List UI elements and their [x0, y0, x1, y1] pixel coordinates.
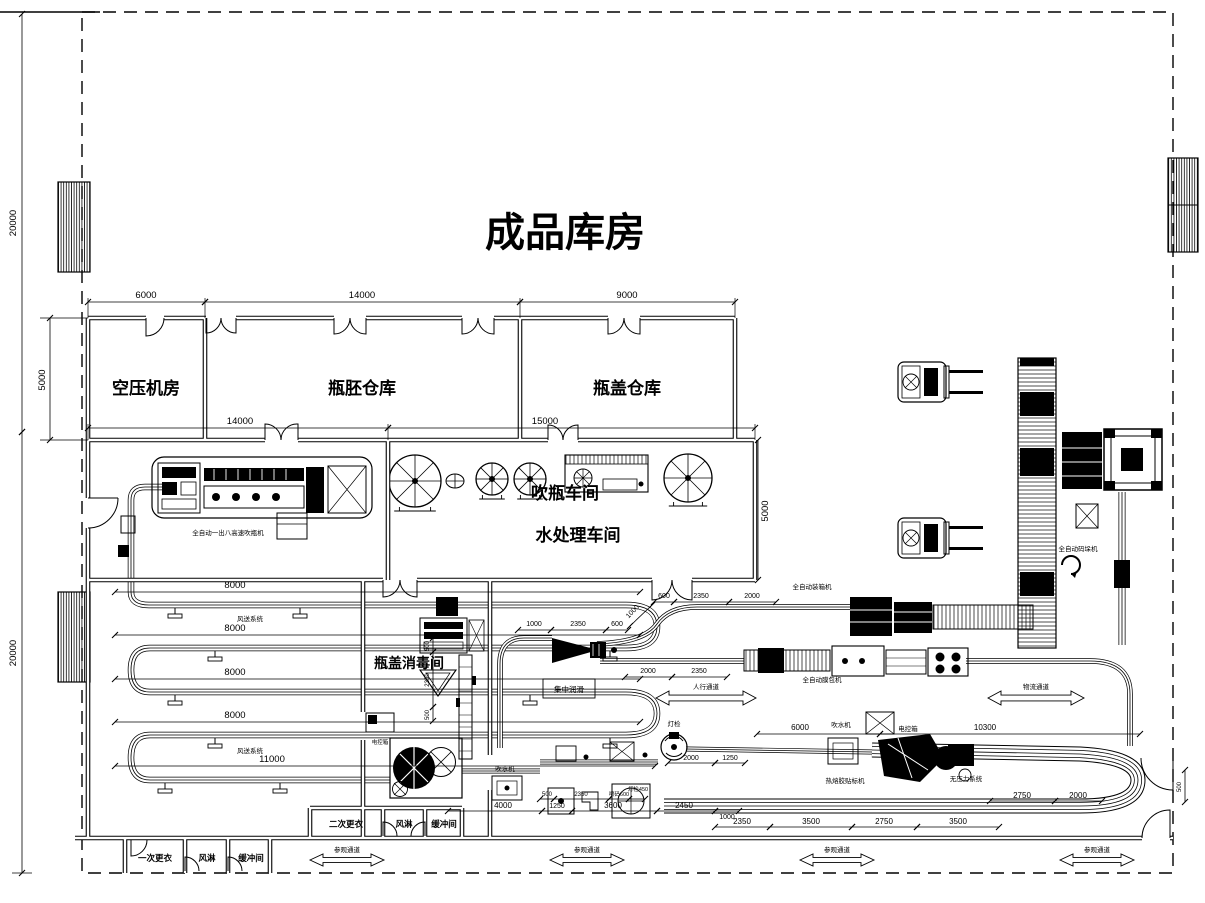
dimension-label: 喷码600 [609, 790, 629, 798]
dimension-label: 500 [1177, 781, 1183, 792]
door-swing [672, 580, 692, 600]
dimension-label: 600 [658, 593, 670, 600]
door-swing [88, 498, 118, 528]
visitor-corridor-arrow-label: 参观通道 [1084, 845, 1111, 854]
dimension-label: 20000 [8, 210, 19, 236]
conveyor-foot-base [208, 657, 222, 661]
room-label-cap-warehouse: 瓶盖仓库 [593, 378, 661, 398]
dimension-label: 20000 [8, 640, 19, 666]
label-air-conveying-system: 风送系统 [237, 614, 264, 623]
door-swing [1142, 810, 1170, 838]
dimension-label: 1250 [722, 755, 738, 762]
logistics-corridor-arrow-label: 物流通道 [1023, 682, 1050, 691]
room-label-preform-warehouse: 瓶胚仓库 [328, 378, 396, 398]
dimension-label: 2350 [425, 673, 431, 687]
dimension-label: 1250 [549, 803, 565, 810]
label-central-lubrication: 集中润滑 [554, 684, 584, 694]
door-swing [265, 424, 281, 440]
dimension-label: 8000 [224, 580, 245, 591]
dimension-label: 2350 [733, 817, 751, 826]
dimension-label: 9000 [616, 290, 637, 301]
dimension-label: 14000 [227, 416, 253, 427]
dimension-label: 8000 [224, 623, 245, 634]
door-swing [400, 580, 417, 597]
room-label-first-changing: 一次更衣 [138, 853, 173, 863]
conveyor-foot-base [293, 614, 307, 618]
dimension-label: 2350 [570, 621, 586, 628]
logistics-corridor-arrow [988, 691, 1084, 705]
water-tank-wheel [476, 463, 508, 499]
control-box-2 [866, 712, 894, 734]
door-swing [563, 425, 578, 440]
cap-sterilization-equipment [366, 597, 484, 798]
dimension-label: 2000 [683, 755, 699, 762]
conveyor-foot-base [523, 701, 537, 705]
dimension-label: 1000 [526, 621, 542, 628]
room-label-cap-sterilization: 瓶盖消毒间 [374, 655, 444, 671]
visitor-corridor-arrow-label: 参观通道 [334, 845, 361, 854]
forklift [898, 518, 983, 558]
label-blow-machine: 全自动一出八高速吹瓶机 [192, 528, 264, 537]
page-title: 成品库房 [485, 209, 645, 256]
outer-boundary [82, 12, 1173, 873]
pallet-conveyor-cap [1020, 358, 1054, 366]
dimension-label: 11000 [259, 754, 285, 765]
water-tank-wheel [664, 454, 712, 506]
blow-molding-machine [118, 457, 372, 557]
dimension-tick [649, 602, 655, 608]
dimension-label: 6000 [791, 723, 809, 732]
dimension-label: 灯检450 [628, 785, 648, 793]
door-swing [383, 580, 400, 597]
pedestrian-corridor-arrow-label: 人行通道 [693, 682, 720, 691]
label-control-box: 电控箱 [372, 738, 389, 746]
door-swing [206, 318, 221, 333]
dimension-label: 15000 [532, 416, 558, 427]
visitor-corridor-arrow-label: 参观通道 [574, 845, 601, 854]
dimension-label: 2350 [691, 668, 707, 675]
door-swing [1141, 758, 1173, 790]
factory-floorplan: 2000020000500060001400090001400015000500… [0, 0, 1205, 903]
film-wrapper-row [744, 646, 968, 676]
dimension-label: 5000 [760, 500, 771, 521]
dimension-label: 2000 [744, 593, 760, 600]
pallet-load [1020, 392, 1054, 416]
floorplan-drawing: 2000020000500060001400090001400015000500… [0, 0, 1205, 903]
water-tank-wheel [389, 455, 441, 511]
label-palletizer: 全自动码垛机 [1059, 544, 1099, 553]
water-remover-machine-1 [492, 776, 522, 800]
conveyor-foot-base [158, 789, 172, 793]
dimension-label: 10300 [974, 723, 997, 732]
walls-layer [0, 12, 1173, 873]
forklift [898, 362, 983, 402]
rotation-arrow-icon [1062, 556, 1080, 574]
dimension-label: 8000 [224, 710, 245, 721]
dimension-label: 500 [425, 709, 431, 720]
dimension-label: 14000 [349, 290, 375, 301]
visitor-corridor-arrow-label: 参观通道 [824, 845, 851, 854]
dimension-label: 3500 [802, 817, 820, 826]
label-light-inspection: 灯检 [668, 719, 682, 728]
label-water-remover: 吹水机 [831, 720, 851, 729]
label-labeling-machine: 热熔胶贴标机 [826, 776, 866, 785]
door-swing [548, 425, 563, 440]
dimension-label: 500 [425, 640, 431, 651]
visitor-corridor-arrow [310, 854, 384, 866]
conveyor-foot-base [273, 789, 287, 793]
conveyor-line-center [966, 661, 1130, 746]
room-label-water-treatment: 水处理车间 [536, 525, 621, 545]
dimension-label: 2350 [574, 792, 588, 798]
label-air-conveying-system: 风送系统 [237, 746, 264, 755]
visitor-corridor-arrow [550, 854, 624, 866]
label-case-packer: 全自动装箱机 [793, 582, 833, 591]
label-no-pressure-system: 无压力系统 [950, 774, 983, 783]
dimension-label: 600 [611, 621, 623, 628]
palletizer-machine [1062, 429, 1162, 588]
conveyor-foot-base [168, 614, 182, 618]
pallet-load [1020, 448, 1054, 476]
door-swing [281, 424, 298, 440]
room-label-buffer: 缓冲间 [238, 853, 264, 863]
door-swing [478, 318, 494, 334]
conveyor-line [966, 661, 1130, 746]
dimension-label: 2000 [640, 668, 656, 675]
dimension-label: 2750 [875, 817, 893, 826]
labeling-machine-cluster [878, 734, 974, 782]
label-water-remover: 吹水机 [495, 764, 515, 773]
pallet-load [1020, 572, 1054, 596]
case-packer-cluster [850, 597, 932, 636]
dimension-label: 3500 [949, 817, 967, 826]
dimension-label: 2750 [1013, 791, 1031, 800]
door-swing [334, 318, 350, 334]
door-swing [608, 318, 624, 334]
pedestrian-corridor-arrow [656, 691, 756, 705]
dimension-label: 2350 [693, 593, 709, 600]
label-control-box: 电控箱 [898, 724, 918, 733]
room-label-second-changing: 二次更衣 [329, 819, 364, 829]
conveyor-line-inner [966, 661, 1130, 746]
room-label-air-shower: 风淋 [198, 853, 216, 863]
door-swing [146, 318, 164, 336]
line-machines [556, 742, 648, 761]
dimension-label: 4000 [494, 801, 512, 810]
room-label-blow-workshop: 吹瓶车间 [531, 483, 599, 503]
dimension-label: 2000 [1069, 791, 1087, 800]
room-label-air-compressor: 空压机房 [112, 378, 180, 398]
dimension-label: 5000 [37, 369, 48, 390]
room-label-buffer: 缓冲间 [431, 819, 457, 829]
label-film-wrapper: 全自动膜包机 [803, 675, 843, 684]
conveyor-foot-base [168, 701, 182, 705]
dimension-label: 8000 [224, 667, 245, 678]
visitor-corridor-arrow [1060, 854, 1134, 866]
door-swing [221, 318, 236, 333]
dimension-label: 500 [542, 792, 553, 798]
dimension-label: 6000 [135, 290, 156, 301]
conveyor-foot-base [208, 744, 222, 748]
door-swing [462, 318, 478, 334]
dimension-label: 3600 [604, 801, 622, 810]
room-label-air-shower: 风淋 [395, 819, 413, 829]
dimension-label: 2450 [675, 801, 693, 810]
door-swing [350, 318, 366, 334]
door-swing [624, 318, 640, 334]
visitor-corridor-arrow [800, 854, 874, 866]
